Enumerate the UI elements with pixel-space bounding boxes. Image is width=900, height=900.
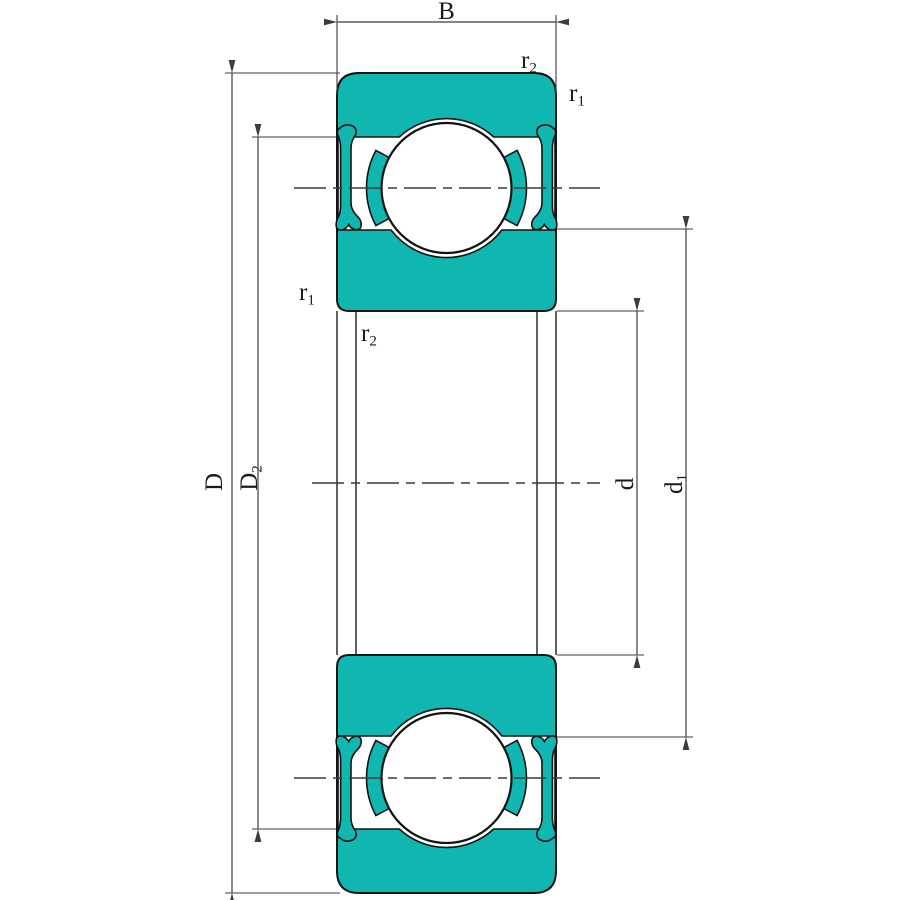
label-chamfer-r1-mid-left: r1: [299, 279, 315, 309]
label-outer-shoulder-D2: D2: [236, 465, 266, 491]
label-inner-shoulder-d1: d1: [661, 474, 691, 494]
upper-bearing-section: [336, 73, 557, 311]
label-chamfer-r2-top: r2: [521, 47, 537, 77]
lower-bearing-section: [336, 655, 557, 893]
label-chamfer-r1-top-right: r1: [569, 80, 585, 110]
label-bore-diameter-d: d: [612, 477, 639, 490]
bearing-cross-section-diagram: B r2 r1 r1 r2 D D2 d d1: [0, 0, 900, 900]
label-outer-diameter-D: D: [201, 473, 228, 491]
label-chamfer-r2-mid: r2: [361, 320, 377, 350]
label-width-B: B: [438, 0, 455, 25]
bearing-drawing-page: B r2 r1 r1 r2 D D2 d d1: [0, 0, 900, 900]
